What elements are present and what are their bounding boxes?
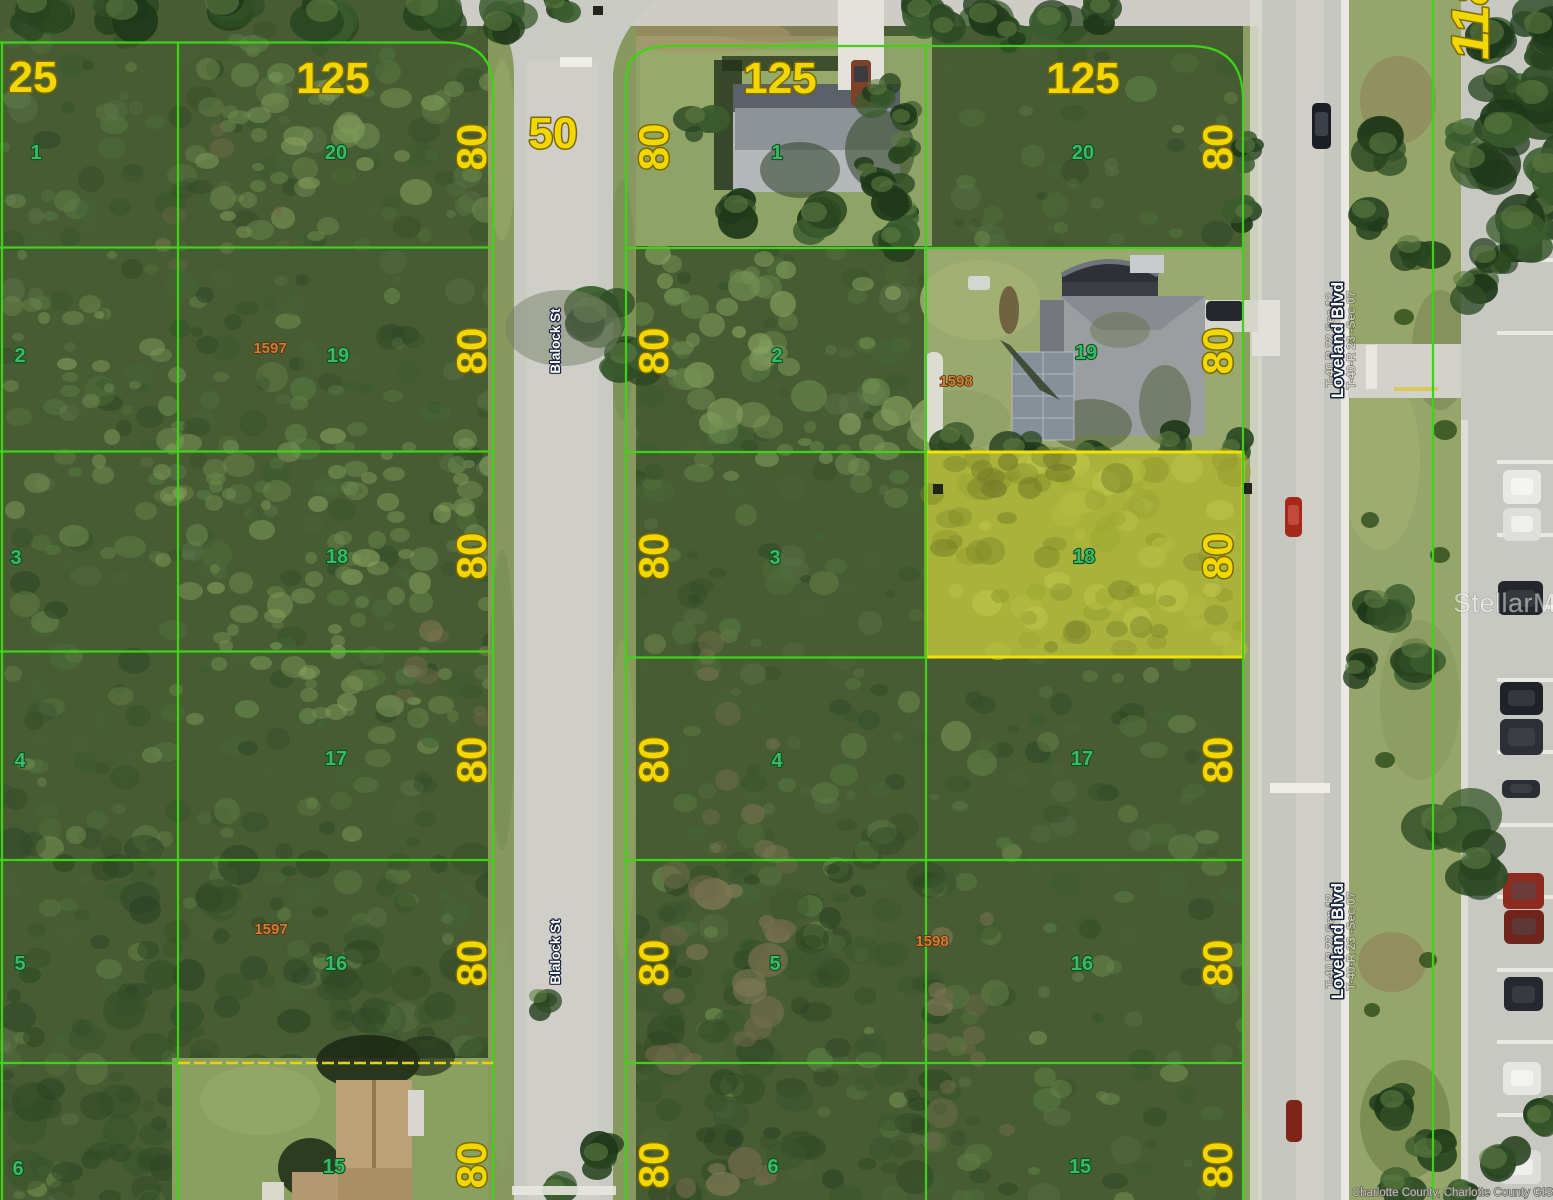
svg-text:17: 17 bbox=[325, 748, 347, 770]
svg-text:20: 20 bbox=[325, 142, 347, 164]
svg-text:80: 80 bbox=[630, 1142, 677, 1189]
svg-text:80: 80 bbox=[1194, 1142, 1241, 1189]
svg-text:80: 80 bbox=[448, 940, 495, 987]
svg-text:Blalock St: Blalock St bbox=[548, 308, 563, 374]
svg-text:80: 80 bbox=[448, 737, 495, 784]
svg-text:80: 80 bbox=[630, 328, 677, 375]
svg-text:80: 80 bbox=[1194, 940, 1241, 987]
svg-text:Charlotte County, Charlotte Co: Charlotte County, Charlotte County GIS bbox=[1352, 1187, 1553, 1199]
svg-text:118: 118 bbox=[1442, 0, 1500, 64]
svg-text:5: 5 bbox=[769, 953, 780, 975]
svg-text:18: 18 bbox=[326, 546, 348, 568]
svg-text:5: 5 bbox=[14, 953, 25, 975]
svg-text:2: 2 bbox=[771, 345, 782, 367]
svg-text:T-40-R 23 -Sec 07: T-40-R 23 -Sec 07 bbox=[1344, 290, 1358, 389]
svg-text:80: 80 bbox=[1194, 328, 1241, 375]
svg-text:80: 80 bbox=[448, 533, 495, 580]
svg-text:80: 80 bbox=[1194, 124, 1241, 171]
svg-text:19: 19 bbox=[1075, 342, 1097, 364]
svg-text:16: 16 bbox=[325, 953, 347, 975]
svg-text:17: 17 bbox=[1071, 748, 1093, 770]
svg-text:125: 125 bbox=[1046, 54, 1119, 103]
svg-text:125: 125 bbox=[296, 54, 369, 103]
svg-text:3: 3 bbox=[10, 547, 21, 569]
svg-text:20: 20 bbox=[1072, 142, 1094, 164]
svg-text:19: 19 bbox=[327, 345, 349, 367]
svg-text:T-40-R 23 -Sec 07: T-40-R 23 -Sec 07 bbox=[1344, 891, 1358, 990]
svg-text:Blalock St: Blalock St bbox=[548, 919, 563, 985]
svg-text:80: 80 bbox=[630, 737, 677, 784]
svg-text:1597: 1597 bbox=[254, 921, 287, 938]
svg-text:1598: 1598 bbox=[939, 373, 972, 390]
svg-text:1597: 1597 bbox=[253, 340, 286, 357]
svg-text:16: 16 bbox=[1071, 953, 1093, 975]
svg-text:4: 4 bbox=[771, 750, 783, 772]
svg-text:80: 80 bbox=[448, 1142, 495, 1189]
svg-text:1598: 1598 bbox=[915, 933, 948, 950]
svg-text:3: 3 bbox=[769, 547, 780, 569]
svg-text:80: 80 bbox=[448, 328, 495, 375]
svg-text:1: 1 bbox=[30, 142, 41, 164]
svg-text:80: 80 bbox=[1194, 533, 1241, 580]
svg-text:50: 50 bbox=[529, 109, 578, 158]
svg-text:6: 6 bbox=[767, 1156, 778, 1178]
svg-text:4: 4 bbox=[14, 750, 26, 772]
svg-text:1: 1 bbox=[771, 142, 782, 164]
svg-text:80: 80 bbox=[630, 940, 677, 987]
svg-text:80: 80 bbox=[1194, 737, 1241, 784]
svg-text:15: 15 bbox=[1069, 1156, 1091, 1178]
svg-text:80: 80 bbox=[630, 124, 677, 171]
svg-text:18: 18 bbox=[1073, 546, 1095, 568]
svg-text:80: 80 bbox=[448, 124, 495, 171]
svg-text:15: 15 bbox=[323, 1156, 345, 1178]
svg-text:2: 2 bbox=[14, 345, 25, 367]
svg-text:6: 6 bbox=[12, 1158, 23, 1180]
svg-text:StellarMLS: StellarMLS bbox=[1453, 588, 1553, 618]
svg-text:80: 80 bbox=[630, 533, 677, 580]
svg-text:25: 25 bbox=[9, 53, 58, 102]
svg-text:125: 125 bbox=[743, 54, 816, 103]
